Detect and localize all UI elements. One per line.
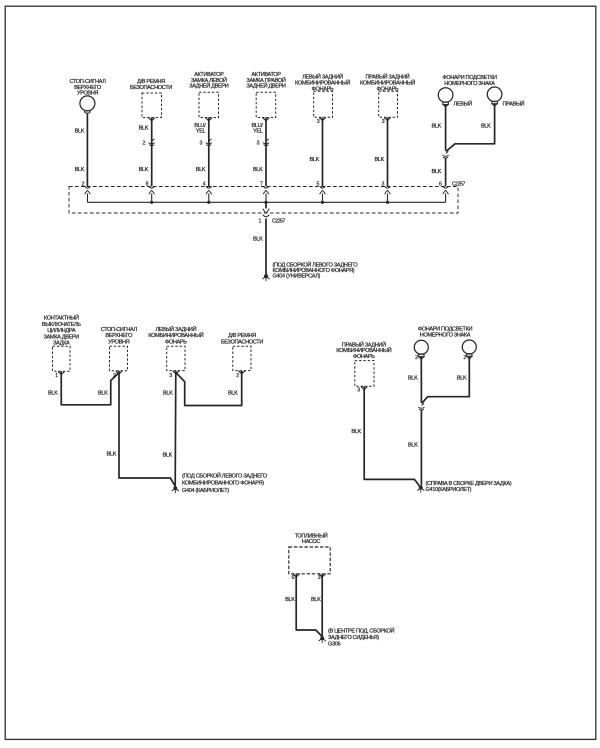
svg-text:ЗАМКА ПРАВОЙ: ЗАМКА ПРАВОЙ bbox=[246, 76, 285, 84]
svg-text:BLK: BLK bbox=[139, 126, 149, 132]
svg-text:ЗАДНЕЙ ДВЕРИ: ЗАДНЕЙ ДВЕРИ bbox=[246, 82, 286, 90]
svg-text:BLK: BLK bbox=[163, 391, 173, 397]
svg-text:G404 (КАБРИОЛЕТ): G404 (КАБРИОЛЕТ) bbox=[182, 488, 229, 494]
svg-text:БЕЗОПАСНОСТИ: БЕЗОПАСНОСТИ bbox=[130, 85, 172, 91]
svg-text:BLK: BLK bbox=[162, 453, 172, 459]
svg-text:G410(КАБРИОЛЕТ): G410(КАБРИОЛЕТ) bbox=[426, 487, 472, 493]
svg-text:BLK: BLK bbox=[311, 597, 321, 603]
svg-text:3: 3 bbox=[382, 119, 385, 125]
svg-text:3: 3 bbox=[317, 119, 320, 125]
svg-text:НОМЕРНОГО ЗНАКА: НОМЕРНОГО ЗНАКА bbox=[420, 332, 471, 338]
svg-text:КОМБИНИРОВАННОГО ФОНАРЯ): КОМБИНИРОВАННОГО ФОНАРЯ) bbox=[182, 481, 264, 487]
svg-text:ЦИЛИНДРА: ЦИЛИНДРА bbox=[47, 328, 76, 334]
svg-text:BLK: BLK bbox=[139, 167, 149, 173]
svg-text:G306: G306 bbox=[328, 642, 341, 648]
svg-text:3: 3 bbox=[357, 388, 360, 394]
svg-text:2: 2 bbox=[142, 140, 145, 146]
svg-text:ЗАДКА: ЗАДКА bbox=[53, 341, 70, 347]
svg-text:YEL: YEL bbox=[196, 129, 206, 135]
svg-text:ЗАМКА ДВЕРИ: ЗАМКА ДВЕРИ bbox=[44, 334, 80, 340]
svg-text:BLK: BLK bbox=[408, 443, 418, 449]
svg-text:3: 3 bbox=[169, 373, 172, 379]
svg-text:КОМБИНИРОВАННЫЙ: КОМБИНИРОВАННЫЙ bbox=[360, 79, 415, 87]
svg-text:ВЫКЛЮЧАТЕЛЬ: ВЫКЛЮЧАТЕЛЬ bbox=[42, 322, 81, 328]
svg-text:BLK: BLK bbox=[431, 124, 441, 130]
svg-text:НОМЕРНОГО ЗНАКА: НОМЕРНОГО ЗНАКА bbox=[444, 81, 495, 87]
svg-text:ФОНАРЬ: ФОНАРЬ bbox=[165, 339, 187, 345]
svg-text:BLK: BLK bbox=[228, 391, 238, 397]
svg-text:BLK: BLK bbox=[481, 124, 491, 130]
svg-text:BLK: BLK bbox=[351, 429, 361, 435]
svg-text:ЛЕВЫЙ ЗАДНИЙ: ЛЕВЫЙ ЗАДНИЙ bbox=[155, 325, 196, 333]
svg-text:2: 2 bbox=[463, 355, 466, 361]
svg-text:НАСОС: НАСОС bbox=[302, 539, 321, 545]
svg-text:6: 6 bbox=[292, 575, 295, 581]
svg-text:BLK: BLK bbox=[196, 167, 206, 173]
svg-text:3: 3 bbox=[257, 140, 260, 146]
svg-text:YEL: YEL bbox=[253, 129, 263, 135]
svg-text:ЗАДНЕГО СИДЕНЬЯ): ЗАДНЕГО СИДЕНЬЯ) bbox=[328, 635, 379, 641]
svg-text:БЕЗОПАСНОСТИ: БЕЗОПАСНОСТИ bbox=[221, 339, 263, 345]
svg-text:ЗАДНЕЙ ДВЕРИ: ЗАДНЕЙ ДВЕРИ bbox=[189, 82, 229, 90]
svg-text:G404 (УНИВЕРСАЛ): G404 (УНИВЕРСАЛ) bbox=[273, 273, 321, 279]
svg-text:УРОВНЯ: УРОВНЯ bbox=[108, 339, 130, 345]
svg-text:КОМБИНИРОВАННЫЙ: КОМБИНИРОВАННЫЙ bbox=[295, 79, 350, 87]
svg-text:BLK: BLK bbox=[253, 167, 263, 173]
svg-text:BLK: BLK bbox=[106, 452, 116, 458]
svg-text:1: 1 bbox=[55, 373, 58, 379]
svg-text:(СПРАВА В СБОРКЕ ДВЕРИ ЗАДКА): (СПРАВА В СБОРКЕ ДВЕРИ ЗАДКА) bbox=[426, 481, 512, 487]
svg-text:BLK: BLK bbox=[253, 237, 263, 243]
svg-text:СТОП-СИГНАЛ: СТОП-СИГНАЛ bbox=[101, 327, 138, 333]
svg-text:BLK: BLK bbox=[408, 376, 418, 382]
svg-text:ПРАВЫЙ: ПРАВЫЙ bbox=[503, 100, 525, 108]
svg-text:BLK: BLK bbox=[48, 391, 58, 397]
svg-text:(В ЦЕНТРЕ ПОД, СБОРКОЙ: (В ЦЕНТРЕ ПОД, СБОРКОЙ bbox=[328, 627, 395, 635]
svg-text:BLK: BLK bbox=[285, 597, 295, 603]
svg-text:2: 2 bbox=[415, 355, 418, 361]
svg-text:3: 3 bbox=[199, 140, 202, 146]
svg-text:BLK: BLK bbox=[98, 391, 108, 397]
svg-text:BLK: BLK bbox=[374, 157, 384, 163]
svg-text:Д/В РЕМНЯ: Д/В РЕМНЯ bbox=[228, 333, 256, 339]
svg-text:ЛЕВЫЙ ЗАДНИЙ: ЛЕВЫЙ ЗАДНИЙ bbox=[302, 73, 343, 81]
svg-text:BLK: BLK bbox=[75, 167, 85, 173]
svg-text:КОНТАКТНЫЙ: КОНТАКТНЫЙ bbox=[44, 314, 79, 322]
svg-text:ЛЕВЫЙ: ЛЕВЫЙ bbox=[454, 100, 473, 108]
svg-text:BLK: BLK bbox=[309, 157, 319, 163]
svg-text:BLK: BLK bbox=[457, 376, 467, 382]
svg-text:ПРАВЫЙ ЗАДНИЙ: ПРАВЫЙ ЗАДНИЙ bbox=[366, 73, 410, 81]
svg-text:1: 1 bbox=[258, 218, 261, 224]
svg-text:(ПОД СБОРКОЙ ЛЕВОГО ЗАДНЕГО: (ПОД СБОРКОЙ ЛЕВОГО ЗАДНЕГО bbox=[182, 472, 268, 480]
svg-text:BLK: BLK bbox=[75, 129, 85, 135]
svg-text:ЗАМКА ЛЕВОЙ: ЗАМКА ЛЕВОЙ bbox=[191, 76, 227, 84]
svg-text:BLK: BLK bbox=[431, 169, 441, 175]
svg-text:C2257: C2257 bbox=[272, 218, 286, 224]
svg-text:2: 2 bbox=[236, 373, 239, 379]
svg-text:ФОНАРЬ: ФОНАРЬ bbox=[353, 354, 375, 360]
svg-text:ВЕРХНЕГО: ВЕРХНЕГО bbox=[105, 333, 133, 339]
svg-text:КОМБИНИРОВАННЫЙ: КОМБИНИРОВАННЫЙ bbox=[148, 331, 203, 339]
